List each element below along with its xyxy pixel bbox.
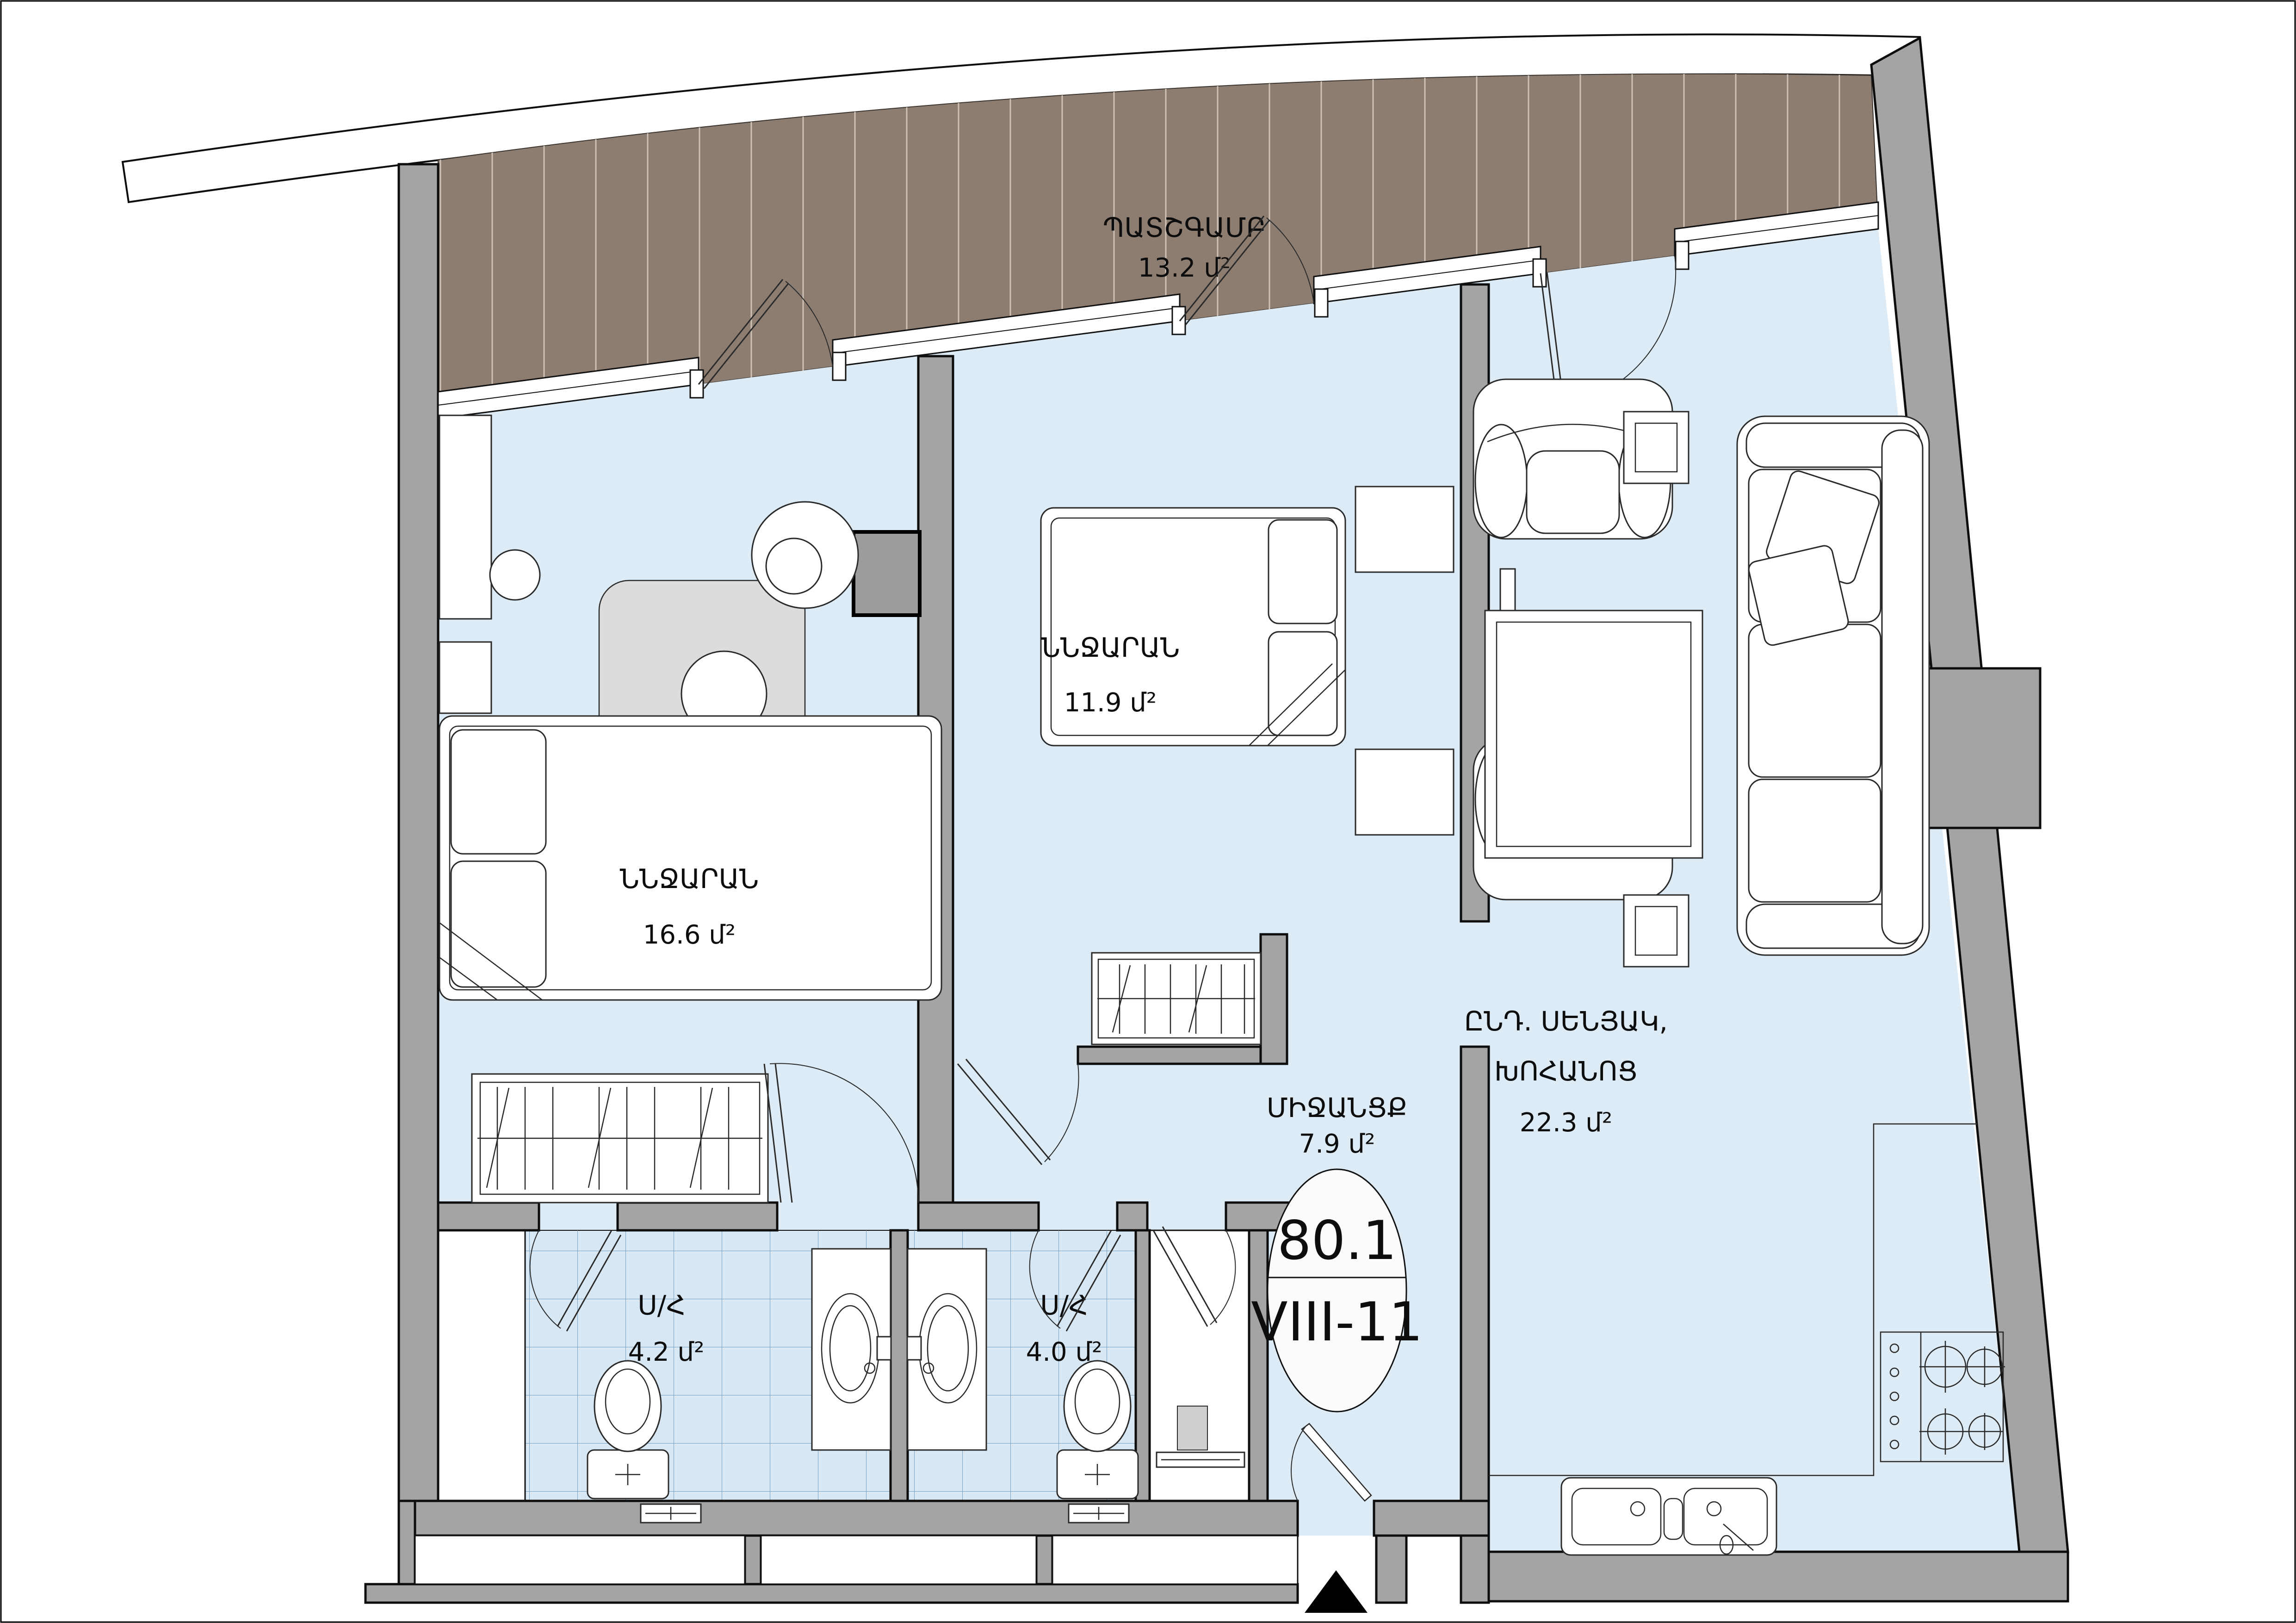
wardrobe bbox=[1092, 953, 1261, 1044]
cell-3 bbox=[1052, 1536, 1298, 1584]
wall-below-entry bbox=[1376, 1536, 1406, 1603]
sofa-pillow bbox=[1747, 544, 1850, 647]
pillow bbox=[451, 730, 546, 854]
chair-top bbox=[752, 502, 858, 608]
stool bbox=[490, 550, 540, 600]
wall-bottom-left bbox=[399, 1501, 1298, 1536]
bath-left-area: 4.2 մ² bbox=[628, 1337, 705, 1367]
toilet bbox=[1057, 1361, 1138, 1499]
bath-sink bbox=[812, 1249, 891, 1450]
wall-below-div2 bbox=[1036, 1536, 1052, 1584]
cell-2 bbox=[761, 1536, 1036, 1584]
dresser bbox=[439, 415, 491, 619]
wall-bath-top-4 bbox=[1117, 1203, 1147, 1230]
sofa-back bbox=[1882, 430, 1923, 944]
wall-below-left bbox=[399, 1501, 415, 1584]
wall-bedroom2-niche bbox=[1261, 934, 1287, 1064]
sofa bbox=[1737, 416, 1929, 955]
wall-step-kitchen bbox=[1461, 1536, 1489, 1603]
bedroom-left-area: 16.6 մ² bbox=[643, 920, 736, 950]
door-jamb bbox=[1315, 289, 1328, 317]
wall-bedroom2-south bbox=[1078, 1047, 1287, 1064]
wall-bath-divider bbox=[891, 1230, 908, 1501]
electric-panel bbox=[1177, 1406, 1207, 1450]
living-name-1: ԸՆԴ. ՍԵՆՅԱԿ, bbox=[1464, 1006, 1668, 1037]
wall-kitchen-bottom bbox=[1489, 1552, 2068, 1601]
bedroom-mid-area: 11.9 մ² bbox=[1064, 688, 1157, 718]
hallway-name: ՄԻՋԱՆՑՔ bbox=[1267, 1092, 1407, 1123]
wardrobe bbox=[472, 1074, 768, 1203]
balcony-area: 13.2 մ² bbox=[1138, 253, 1231, 283]
sofa-seat bbox=[1749, 779, 1881, 902]
unit-area: 80.1 bbox=[1277, 1210, 1397, 1272]
door-jamb bbox=[1676, 241, 1689, 269]
wall-below-div1 bbox=[745, 1536, 761, 1584]
kitchen-sink bbox=[1561, 1478, 1776, 1555]
unit-number: VIII-11 bbox=[1251, 1291, 1423, 1353]
cell-1 bbox=[415, 1536, 745, 1584]
floor-plan: ՊԱՏՇԳԱՄԲ 13.2 մ² bbox=[0, 0, 2296, 1623]
door-jamb bbox=[1172, 307, 1185, 334]
nightstand bbox=[1355, 749, 1454, 835]
wall-bath-top-3 bbox=[918, 1203, 1039, 1230]
coffee-table bbox=[1485, 611, 1702, 858]
door-jamb bbox=[833, 352, 846, 380]
living-area: 22.3 մ² bbox=[1520, 1108, 1612, 1138]
bedroom-mid-name: ՆՆՋԱՐԱՆ bbox=[1041, 632, 1180, 663]
hallway-area: 7.9 մ² bbox=[1299, 1129, 1375, 1159]
door-jamb bbox=[690, 370, 703, 398]
nightstand bbox=[439, 642, 491, 713]
side-table-bottom bbox=[1624, 895, 1689, 967]
bath-sink bbox=[907, 1249, 986, 1450]
wall-bath-top-1 bbox=[438, 1203, 539, 1230]
pillow bbox=[1269, 632, 1337, 735]
sofa-seat bbox=[1749, 624, 1881, 777]
entry-threshold bbox=[1298, 1501, 1374, 1536]
heater bbox=[641, 1504, 701, 1523]
pillow bbox=[1269, 520, 1337, 623]
wall-bottom-entry bbox=[1374, 1501, 1489, 1536]
wall-below-band bbox=[365, 1584, 1298, 1603]
shaft-room bbox=[438, 1230, 525, 1501]
wall-left bbox=[399, 164, 438, 1501]
heater bbox=[1069, 1504, 1129, 1523]
side-table-top bbox=[1624, 412, 1689, 483]
toilet bbox=[588, 1361, 668, 1499]
wall-hall-kitchen bbox=[1461, 1047, 1489, 1501]
living-name-2: ԽՈՀԱՆՈՑ bbox=[1494, 1055, 1638, 1087]
bath-left-name: Ս/Հ bbox=[637, 1290, 686, 1321]
balcony-name: ՊԱՏՇԳԱՄԲ bbox=[1103, 212, 1266, 243]
wall-bath-top-2 bbox=[618, 1203, 777, 1230]
bedroom-left-name: ՆՆՋԱՐԱՆ bbox=[620, 863, 759, 895]
vent-shaft-block bbox=[854, 532, 920, 615]
pillow bbox=[451, 861, 546, 987]
nightstand bbox=[1355, 487, 1454, 572]
door-jamb bbox=[1533, 259, 1546, 287]
wall-storage-east bbox=[1249, 1230, 1268, 1501]
bed-double bbox=[439, 716, 941, 1000]
